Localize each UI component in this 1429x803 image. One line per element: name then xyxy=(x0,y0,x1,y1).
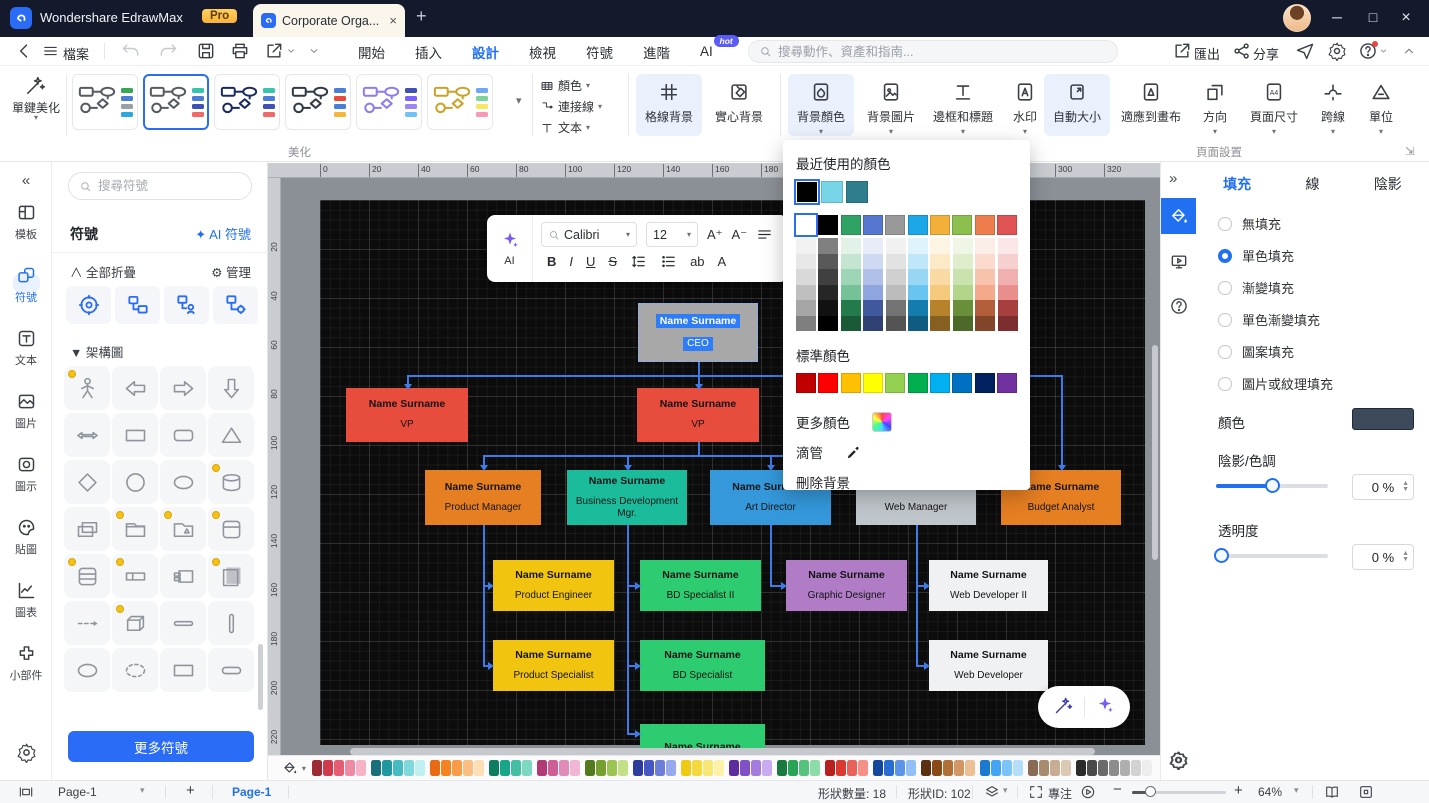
help-caret-icon[interactable] xyxy=(1379,41,1388,61)
theme-color-variant-swatch[interactable] xyxy=(930,238,950,254)
add-page-button[interactable]: + xyxy=(186,782,195,799)
palette-swatch[interactable] xyxy=(714,760,724,776)
theme-color-variant-swatch[interactable] xyxy=(953,300,973,316)
theme-thumbnail-3[interactable] xyxy=(214,74,280,130)
theme-color-variant-swatch[interactable] xyxy=(998,316,1018,332)
org-node-vp[interactable]: Name SurnameVP xyxy=(637,388,759,442)
shape-card-top[interactable] xyxy=(208,507,254,551)
shape-folder-flag[interactable] xyxy=(160,507,206,551)
palette-swatch[interactable] xyxy=(441,760,451,776)
tab-close-icon[interactable]: × xyxy=(389,13,397,28)
palette-swatch[interactable] xyxy=(382,760,392,776)
opacity-slider[interactable] xyxy=(1216,554,1328,558)
palette-swatch[interactable] xyxy=(644,760,654,776)
focus-label[interactable]: 專注 xyxy=(1048,785,1072,802)
shape-rows-box[interactable] xyxy=(64,554,110,598)
theme-color-swatch[interactable] xyxy=(796,215,816,235)
expand-panel-icon[interactable]: » xyxy=(1169,170,1177,190)
sidebar-item-模板[interactable]: 模板 xyxy=(0,202,52,242)
print-icon[interactable] xyxy=(230,41,250,61)
palette-caret-icon[interactable]: ▾ xyxy=(302,764,306,773)
palette-swatch[interactable] xyxy=(607,760,617,776)
sidebar-item-貼圖[interactable]: 貼圖 xyxy=(0,517,52,557)
palette-swatch[interactable] xyxy=(430,760,440,776)
theme-color-variant-swatch[interactable] xyxy=(953,316,973,332)
theme-color-variant-swatch[interactable] xyxy=(930,269,950,285)
shape-ellipse[interactable] xyxy=(64,648,110,692)
theme-color-variant-swatch[interactable] xyxy=(975,300,995,316)
theme-color-variant-swatch[interactable] xyxy=(886,300,906,316)
palette-swatch[interactable] xyxy=(692,760,702,776)
theme-color-variant-swatch[interactable] xyxy=(818,269,838,285)
undo-icon[interactable] xyxy=(121,41,141,61)
theme-color-swatch[interactable] xyxy=(841,215,861,235)
shape-class-box[interactable] xyxy=(64,507,110,551)
palette-swatch[interactable] xyxy=(596,760,606,776)
export-icon[interactable] xyxy=(1172,41,1192,61)
font-increase-button[interactable]: A⁺ xyxy=(707,227,723,243)
smart-symbol-1[interactable] xyxy=(66,286,111,324)
background-color-button[interactable]: 背景顏色▾ xyxy=(788,74,854,136)
play-presentation-icon[interactable] xyxy=(1080,784,1096,800)
theme-color-swatch[interactable] xyxy=(975,215,995,235)
fill-option-圖案填充[interactable]: 圖案填充 xyxy=(1218,342,1294,361)
theme-thumbnail-6[interactable] xyxy=(427,74,493,130)
theme-color-variant-swatch[interactable] xyxy=(908,269,928,285)
theme-color-variant-swatch[interactable] xyxy=(796,300,816,316)
list-icon[interactable] xyxy=(660,253,677,270)
focus-mode-icon[interactable] xyxy=(1028,784,1044,800)
fill-panel-tab-填充[interactable]: 填充 xyxy=(1223,174,1251,194)
theme-color-variant-swatch[interactable] xyxy=(796,254,816,270)
shape-rectangle[interactable] xyxy=(160,648,206,692)
theme-color-swatch[interactable] xyxy=(952,215,972,235)
palette-swatch[interactable] xyxy=(522,760,532,776)
cross-line-button[interactable]: 跨線▾ xyxy=(1310,74,1356,136)
font-decrease-button[interactable]: A⁻ xyxy=(732,227,748,243)
palette-swatch[interactable] xyxy=(762,760,772,776)
fill-option-無填充[interactable]: 無填充 xyxy=(1218,214,1281,233)
palette-swatch[interactable] xyxy=(943,760,953,776)
theme-color-variant-swatch[interactable] xyxy=(886,238,906,254)
smart-symbol-3[interactable] xyxy=(164,286,209,324)
theme-color-variant-swatch[interactable] xyxy=(863,238,883,254)
shape-arrow-double[interactable] xyxy=(64,413,110,457)
collapse-sidebar-icon[interactable]: « xyxy=(0,172,52,189)
palette-swatch[interactable] xyxy=(1061,760,1071,776)
palette-swatch[interactable] xyxy=(873,760,883,776)
remove-background-item[interactable]: 刪除背景 xyxy=(796,467,1017,497)
theme-color-variant-swatch[interactable] xyxy=(975,254,995,270)
radio-icon[interactable] xyxy=(1218,249,1232,263)
share-icon[interactable] xyxy=(1232,41,1252,61)
radio-icon[interactable] xyxy=(1218,313,1232,327)
fill-panel-tab-線[interactable]: 線 xyxy=(1305,174,1319,194)
shade-value-spinner[interactable]: 0 %▲▼ xyxy=(1352,474,1414,500)
palette-swatch[interactable] xyxy=(895,760,905,776)
palette-swatch[interactable] xyxy=(991,760,1001,776)
smart-symbol-2[interactable] xyxy=(115,286,160,324)
page-selector-caret-icon[interactable]: ▾ xyxy=(140,785,145,796)
eyedropper-item[interactable]: 滴管 xyxy=(796,437,1017,467)
palette-swatch[interactable] xyxy=(334,760,344,776)
theme-color-variant-swatch[interactable] xyxy=(886,285,906,301)
grid-background-button[interactable]: 格線背景 xyxy=(636,74,702,136)
standard-color-swatch[interactable] xyxy=(975,373,995,393)
theme-color-variant-swatch[interactable] xyxy=(841,300,861,316)
ai-sparkle-icon[interactable] xyxy=(1095,695,1115,720)
theme-color-variant-swatch[interactable] xyxy=(796,285,816,301)
palette-swatch[interactable] xyxy=(1076,760,1086,776)
theme-color-variant-swatch[interactable] xyxy=(818,285,838,301)
orientation-button[interactable]: 方向▾ xyxy=(1192,74,1238,136)
theme-color-variant-swatch[interactable] xyxy=(975,316,995,332)
standard-color-swatch[interactable] xyxy=(841,373,861,393)
palette-swatch[interactable] xyxy=(1013,760,1023,776)
palette-swatch[interactable] xyxy=(751,760,761,776)
theme-color-variant-swatch[interactable] xyxy=(930,285,950,301)
theme-color-variant-swatch[interactable] xyxy=(886,316,906,332)
radio-icon[interactable] xyxy=(1218,281,1232,295)
theme-color-variant-swatch[interactable] xyxy=(863,300,883,316)
theme-color-variant-swatch[interactable] xyxy=(998,269,1018,285)
fill-style-icon[interactable] xyxy=(282,760,298,776)
palette-swatch[interactable] xyxy=(965,760,975,776)
shape-triangle[interactable] xyxy=(208,413,254,457)
palette-swatch[interactable] xyxy=(312,760,322,776)
shape-arrow-down[interactable] xyxy=(208,366,254,410)
org-node-product-manager[interactable]: Name SurnameProduct Manager xyxy=(425,470,541,525)
palette-swatch[interactable] xyxy=(666,760,676,776)
palette-swatch[interactable] xyxy=(1131,760,1141,776)
org-node-business-development-mgr-[interactable]: Name SurnameBusiness Development Mgr. xyxy=(567,470,687,525)
palette-swatch[interactable] xyxy=(489,760,499,776)
pan-mode-icon[interactable] xyxy=(18,784,34,800)
theme-color-variant-swatch[interactable] xyxy=(863,316,883,332)
close-button[interactable]: × xyxy=(1396,9,1416,27)
palette-swatch[interactable] xyxy=(323,760,333,776)
shape-stick-figure[interactable] xyxy=(64,366,110,410)
palette-swatch[interactable] xyxy=(1153,760,1160,776)
shape-diamond[interactable] xyxy=(64,460,110,504)
palette-swatch[interactable] xyxy=(371,760,381,776)
palette-swatch[interactable] xyxy=(810,760,820,776)
theme-color-variant-swatch[interactable] xyxy=(908,316,928,332)
standard-color-swatch[interactable] xyxy=(863,373,883,393)
ai-symbols-link[interactable]: ✦ AI 符號 xyxy=(195,224,251,243)
theme-color-variant-swatch[interactable] xyxy=(841,285,861,301)
theme-color-variant-swatch[interactable] xyxy=(796,269,816,285)
palette-swatch[interactable] xyxy=(740,760,750,776)
theme-thumbnail-1[interactable] xyxy=(72,74,138,130)
collapse-ribbon-icon[interactable] xyxy=(1402,41,1416,61)
solid-background-button[interactable]: 實心背景 xyxy=(706,74,772,136)
highlight-color-button[interactable]: ab xyxy=(690,254,704,269)
palette-swatch[interactable] xyxy=(858,760,868,776)
underline-button[interactable]: U xyxy=(586,254,595,269)
font-color-button[interactable]: A xyxy=(718,254,727,269)
shape-h-bar[interactable] xyxy=(160,601,206,645)
shade-slider[interactable] xyxy=(1216,484,1328,488)
fill-option-圖片或紋理填充[interactable]: 圖片或紋理填充 xyxy=(1218,374,1333,393)
org-node-product-engineer[interactable]: Name SurnameProduct Engineer xyxy=(493,560,614,611)
zoom-level[interactable]: 64% xyxy=(1258,785,1282,799)
shape-rounded-rect[interactable] xyxy=(160,413,206,457)
send-icon[interactable] xyxy=(1295,41,1315,61)
background-image-button[interactable]: 背景圖片▾ xyxy=(858,74,924,136)
theme-color-variant-swatch[interactable] xyxy=(841,269,861,285)
ai-button[interactable]: AI xyxy=(487,215,533,282)
theme-color-variant-swatch[interactable] xyxy=(930,300,950,316)
page-tab-active[interactable]: Page-1 xyxy=(232,785,271,799)
shape-box-3d[interactable] xyxy=(112,601,158,645)
shape-arrow-right[interactable] xyxy=(160,366,206,410)
org-node-product-specialist[interactable]: Name SurnameProduct Specialist xyxy=(493,640,614,691)
standard-color-swatch[interactable] xyxy=(930,373,950,393)
radio-icon[interactable] xyxy=(1218,345,1232,359)
palette-swatch[interactable] xyxy=(570,760,580,776)
page-size-button[interactable]: A4頁面尺寸▾ xyxy=(1240,74,1308,136)
theme-color-variant-swatch[interactable] xyxy=(953,269,973,285)
fill-panel-tab-陰影[interactable]: 陰影 xyxy=(1374,174,1402,194)
palette-swatch[interactable] xyxy=(980,760,990,776)
palette-swatch[interactable] xyxy=(585,760,595,776)
standard-color-swatch[interactable] xyxy=(997,373,1017,393)
border-title-button[interactable]: 邊框和標題▾ xyxy=(925,74,1001,136)
collapse-all-button[interactable]: ∧ 全部折疊 xyxy=(70,262,136,281)
theme-color-variant-swatch[interactable] xyxy=(818,238,838,254)
palette-swatch[interactable] xyxy=(777,760,787,776)
layers-icon[interactable] xyxy=(984,784,1000,800)
palette-swatch[interactable] xyxy=(500,760,510,776)
theme-color-variant-swatch[interactable] xyxy=(863,269,883,285)
sidebar-item-圖示[interactable]: 圖示 xyxy=(0,454,52,494)
shape-dashed-arrow[interactable] xyxy=(64,601,110,645)
new-tab-button[interactable]: + xyxy=(416,6,427,27)
theme-color-variant-swatch[interactable] xyxy=(975,269,995,285)
theme-color-variant-swatch[interactable] xyxy=(796,316,816,332)
zoom-caret-icon[interactable]: ▾ xyxy=(1294,785,1299,796)
unit-button[interactable]: 單位▾ xyxy=(1358,74,1404,136)
italic-button[interactable]: I xyxy=(569,254,573,269)
theme-more-icon[interactable]: ▾ xyxy=(516,94,522,107)
export-caret-icon[interactable] xyxy=(286,41,296,61)
theme-color-variant-swatch[interactable] xyxy=(908,300,928,316)
theme-color-variant-swatch[interactable] xyxy=(975,238,995,254)
auto-size-button[interactable]: 自動大小 xyxy=(1044,74,1110,136)
theme-color-variant-swatch[interactable] xyxy=(818,316,838,332)
palette-swatch[interactable] xyxy=(474,760,484,776)
zoom-out-button[interactable]: − xyxy=(1113,781,1122,798)
map-overview-icon[interactable] xyxy=(1324,784,1340,800)
palette-swatch[interactable] xyxy=(825,760,835,776)
font-family-select[interactable]: Calibri▾ xyxy=(541,222,637,247)
palette-swatch[interactable] xyxy=(1050,760,1060,776)
file-menu[interactable]: 檔案 xyxy=(63,44,89,63)
palette-swatch[interactable] xyxy=(836,760,846,776)
palette-swatch[interactable] xyxy=(1039,760,1049,776)
color-menu[interactable]: 顏色▾ xyxy=(540,77,590,94)
menu-tab-插入[interactable]: 插入 xyxy=(415,46,442,61)
org-node-bd-specialist[interactable]: Name SurnameBD Specialist xyxy=(640,640,765,691)
palette-swatch[interactable] xyxy=(1142,760,1152,776)
theme-color-variant-swatch[interactable] xyxy=(953,254,973,270)
palette-swatch[interactable] xyxy=(1120,760,1130,776)
fill-tool-tab[interactable] xyxy=(1161,198,1197,234)
theme-color-variant-swatch[interactable] xyxy=(930,316,950,332)
recent-color-swatch[interactable] xyxy=(796,181,818,203)
theme-color-swatch[interactable] xyxy=(997,215,1017,235)
ai-assistant-pill[interactable] xyxy=(1038,686,1130,728)
shape-slim-rounded[interactable] xyxy=(208,648,254,692)
palette-swatch[interactable] xyxy=(932,760,942,776)
more-colors-item[interactable]: 更多顏色 xyxy=(796,407,1017,437)
theme-color-variant-swatch[interactable] xyxy=(908,238,928,254)
beautify-wand-icon[interactable] xyxy=(1054,695,1074,720)
theme-color-variant-swatch[interactable] xyxy=(998,300,1018,316)
standard-color-swatch[interactable] xyxy=(818,373,838,393)
palette-swatch[interactable] xyxy=(345,760,355,776)
global-search[interactable] xyxy=(748,40,1118,63)
recent-color-swatch[interactable] xyxy=(821,181,843,203)
theme-color-variant-swatch[interactable] xyxy=(908,285,928,301)
shape-book[interactable] xyxy=(208,554,254,598)
share-label[interactable]: 分享 xyxy=(1253,44,1279,63)
palette-swatch[interactable] xyxy=(729,760,739,776)
theme-thumbnail-4[interactable] xyxy=(285,74,351,130)
shape-arrow-left[interactable] xyxy=(112,366,158,410)
theme-color-swatch[interactable] xyxy=(885,215,905,235)
theme-color-variant-swatch[interactable] xyxy=(975,285,995,301)
sidebar-item-圖片[interactable]: 圖片 xyxy=(0,391,52,431)
palette-swatch[interactable] xyxy=(681,760,691,776)
palette-swatch[interactable] xyxy=(452,760,462,776)
palette-swatch[interactable] xyxy=(548,760,558,776)
palette-swatch[interactable] xyxy=(559,760,569,776)
org-node-ceo[interactable]: Name SurnameCEO xyxy=(638,303,758,362)
fill-option-漸變填充[interactable]: 漸變填充 xyxy=(1218,278,1294,297)
palette-swatch[interactable] xyxy=(415,760,425,776)
theme-thumbnail-2[interactable] xyxy=(143,74,209,130)
menu-tab-開始[interactable]: 開始 xyxy=(358,46,385,61)
document-tab[interactable]: Corporate Orga... × xyxy=(253,4,405,37)
line-spacing-icon[interactable] xyxy=(630,253,647,270)
theme-color-variant-swatch[interactable] xyxy=(796,238,816,254)
theme-color-variant-swatch[interactable] xyxy=(818,300,838,316)
theme-color-swatch[interactable] xyxy=(818,215,838,235)
hamburger-icon[interactable] xyxy=(42,41,59,61)
theme-color-variant-swatch[interactable] xyxy=(841,238,861,254)
connector-menu[interactable]: 連接線▾ xyxy=(540,98,602,115)
sidebar-item-符號[interactable]: 符號 xyxy=(0,265,52,305)
panel-scrollbar[interactable] xyxy=(258,644,263,710)
palette-swatch[interactable] xyxy=(1002,760,1012,776)
theme-color-variant-swatch[interactable] xyxy=(998,238,1018,254)
help-panel-icon[interactable] xyxy=(1169,296,1189,316)
shape-cylinder[interactable] xyxy=(208,460,254,504)
palette-swatch[interactable] xyxy=(1109,760,1119,776)
recent-color-swatch[interactable] xyxy=(846,181,868,203)
smart-symbol-4[interactable] xyxy=(213,286,258,324)
shape-ellipse[interactable] xyxy=(160,460,206,504)
page-selector[interactable]: Page-1 xyxy=(58,785,97,799)
radio-icon[interactable] xyxy=(1218,217,1232,231)
theme-color-variant-swatch[interactable] xyxy=(998,254,1018,270)
shape-component[interactable] xyxy=(160,554,206,598)
palette-swatch[interactable] xyxy=(884,760,894,776)
menu-tab-AI[interactable]: AI xyxy=(700,44,713,59)
export-share-icon[interactable] xyxy=(264,41,284,61)
theme-color-variant-swatch[interactable] xyxy=(908,254,928,270)
text-menu[interactable]: 文本▾ xyxy=(540,119,590,136)
opacity-value-spinner[interactable]: 0 %▲▼ xyxy=(1352,544,1414,570)
layers-caret-icon[interactable]: ▾ xyxy=(1003,785,1008,796)
shape-dashed-ellipse[interactable] xyxy=(112,648,158,692)
radio-icon[interactable] xyxy=(1218,377,1232,391)
avatar[interactable] xyxy=(1283,4,1311,32)
one-click-beautify-button[interactable]: 單鍵美化 ▾ xyxy=(8,74,64,120)
collapse-toolbar-icon[interactable] xyxy=(308,41,320,61)
menu-tab-進階[interactable]: 進階 xyxy=(643,46,670,61)
standard-color-swatch[interactable] xyxy=(952,373,972,393)
theme-color-swatch[interactable] xyxy=(863,215,883,235)
watermark-button[interactable]: 水印▾ xyxy=(1003,74,1047,136)
back-icon[interactable] xyxy=(14,41,34,61)
theme-color-variant-swatch[interactable] xyxy=(953,238,973,254)
zoom-in-button[interactable]: + xyxy=(1234,782,1243,799)
menu-tab-檢視[interactable]: 檢視 xyxy=(529,46,556,61)
palette-swatch[interactable] xyxy=(1028,760,1038,776)
more-symbols-button[interactable]: 更多符號 xyxy=(68,731,254,762)
theme-color-swatch[interactable] xyxy=(930,215,950,235)
org-node-graphic-designer[interactable]: Name SurnameGraphic Designer xyxy=(786,560,907,611)
palette-settings-gear-icon[interactable] xyxy=(1168,750,1188,770)
export-label[interactable]: 匯出 xyxy=(1194,44,1220,63)
fit-to-canvas-button[interactable]: 適應到畫布 xyxy=(1112,74,1190,136)
fill-option-單色填充[interactable]: 單色填充 xyxy=(1218,246,1294,265)
presentation-icon[interactable] xyxy=(1169,252,1189,272)
sidebar-item-文本[interactable]: 文本 xyxy=(0,328,52,368)
palette-swatch[interactable] xyxy=(618,760,628,776)
palette-swatch[interactable] xyxy=(633,760,643,776)
theme-color-variant-swatch[interactable] xyxy=(818,254,838,270)
manage-button[interactable]: ⚙ 管理 xyxy=(211,262,251,281)
theme-color-variant-swatch[interactable] xyxy=(998,285,1018,301)
minimize-button[interactable]: ─ xyxy=(1327,9,1347,25)
fullscreen-icon[interactable] xyxy=(1358,784,1374,800)
palette-swatch[interactable] xyxy=(788,760,798,776)
theme-color-variant-swatch[interactable] xyxy=(953,285,973,301)
org-node-web-developer[interactable]: Name SurnameWeb Developer xyxy=(929,640,1048,691)
global-search-input[interactable] xyxy=(778,45,1107,59)
sidebar-gear-icon[interactable] xyxy=(0,742,52,766)
standard-color-swatch[interactable] xyxy=(908,373,928,393)
redo-icon[interactable] xyxy=(158,41,178,61)
theme-color-swatch[interactable] xyxy=(908,215,928,235)
strikethrough-button[interactable]: S xyxy=(608,254,617,269)
palette-swatch[interactable] xyxy=(799,760,809,776)
org-node-bd-specialist-ii[interactable]: Name SurnameBD Specialist II xyxy=(640,560,761,611)
fill-color-swatch[interactable] xyxy=(1352,408,1414,430)
sidebar-item-小部件[interactable]: 小部件 xyxy=(0,643,52,683)
shape-rectangle[interactable] xyxy=(112,413,158,457)
palette-swatch[interactable] xyxy=(1087,760,1097,776)
shape-field-box[interactable] xyxy=(112,554,158,598)
palette-swatch[interactable] xyxy=(954,760,964,776)
palette-swatch[interactable] xyxy=(847,760,857,776)
horizontal-scrollbar[interactable] xyxy=(350,748,1095,755)
shape-folder[interactable] xyxy=(112,507,158,551)
